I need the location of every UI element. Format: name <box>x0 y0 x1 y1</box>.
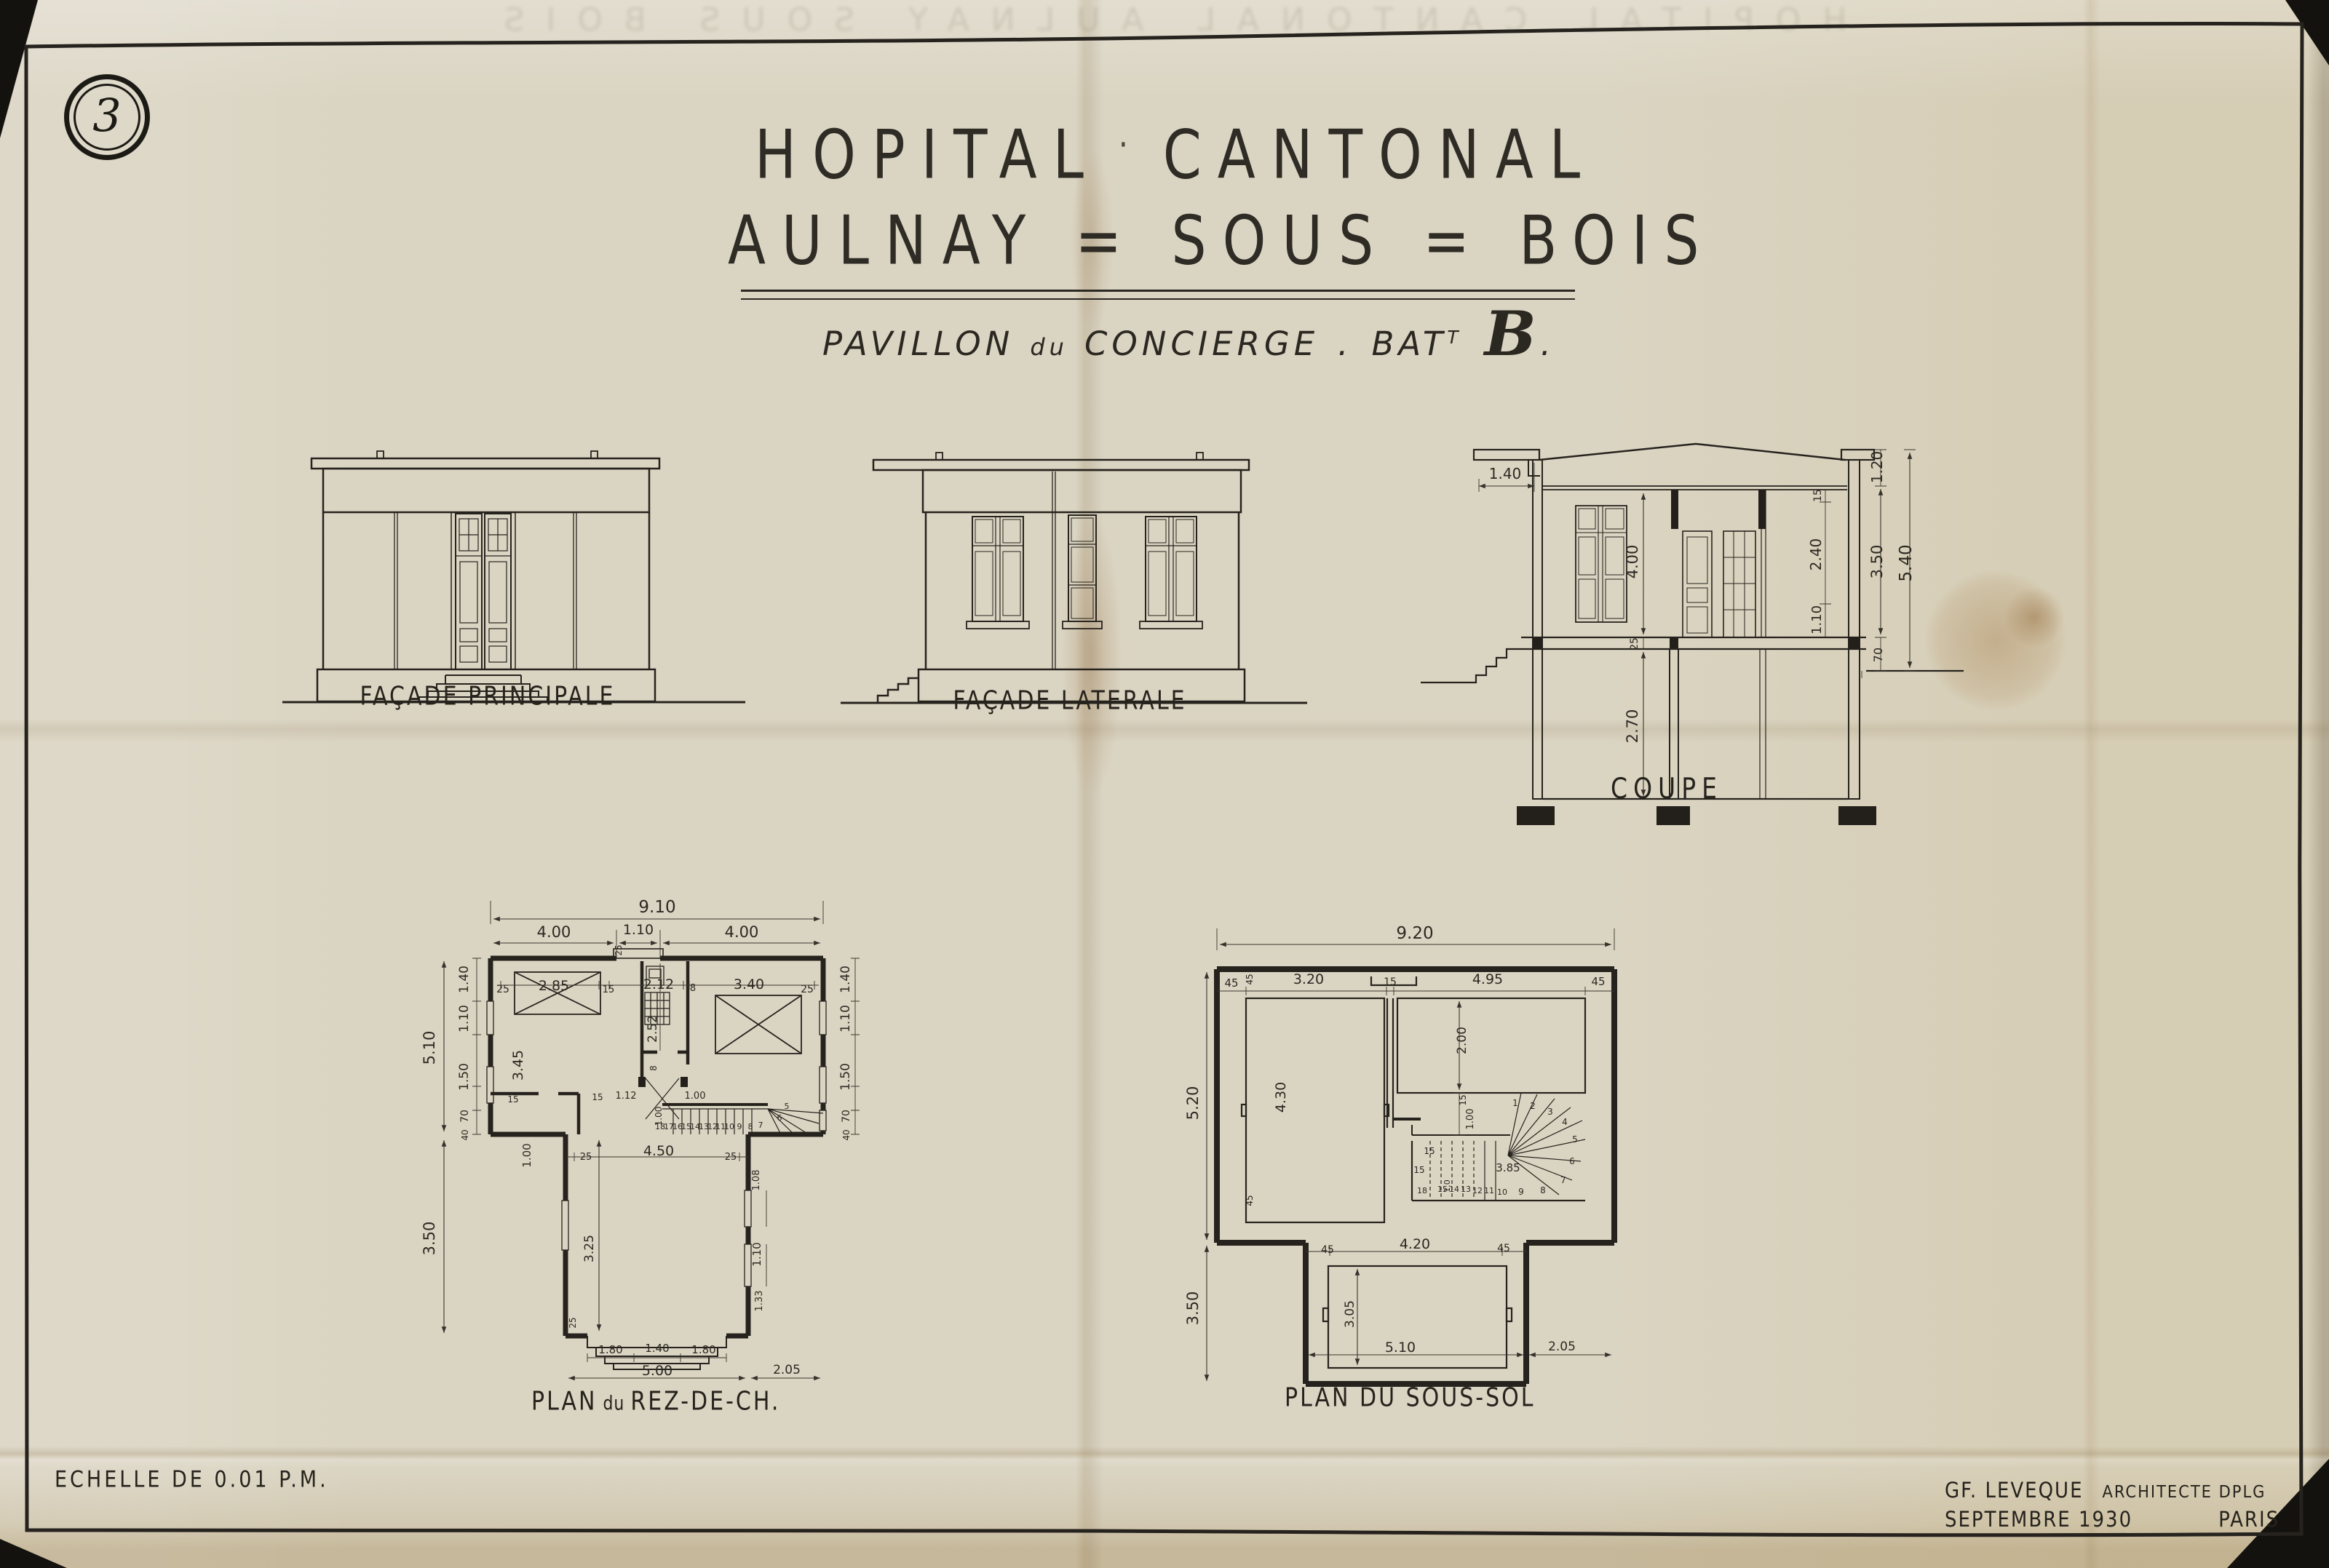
architect-line-1: GF. LEVEQUEARCHITECTE DPLG <box>1945 1479 2280 1503</box>
floor-slab <box>1521 637 1866 649</box>
dim-label: 3.25 <box>582 1235 597 1262</box>
scale-note: ECHELLE DE 0.01 P.M. <box>55 1467 329 1493</box>
dim-label: 4.95 <box>1472 971 1503 987</box>
architect-block: GF. LEVEQUEARCHITECTE DPLG SEPTEMBRE 193… <box>1945 1479 2280 1532</box>
side-steps <box>878 678 918 703</box>
dim-label: 4 <box>1562 1117 1568 1127</box>
dim-label: 8 <box>748 1122 753 1131</box>
sheet-number-badge: 3 <box>64 74 150 160</box>
subtitle-du: du <box>1030 333 1068 361</box>
dim-label: 8 <box>1540 1185 1546 1195</box>
dim-label: 3.05 <box>1343 1300 1357 1328</box>
dim-label: 3.20 <box>1293 971 1324 987</box>
dim-label: 25 <box>801 984 814 995</box>
dim-label: 25 <box>496 984 509 995</box>
dim-label: 15 <box>603 984 615 995</box>
dim-label: 3.85 <box>1496 1161 1520 1174</box>
dim-label: 40 <box>460 1129 470 1140</box>
architect-title: ARCHITECTE DPLG <box>2103 1481 2266 1501</box>
soussol-dim-lines <box>1207 928 1614 1381</box>
dim-label: 6 <box>1569 1156 1575 1166</box>
dim-label: 7 <box>1560 1175 1566 1185</box>
dim-label: 15 <box>1413 1165 1424 1175</box>
dim-label: 1.80 <box>691 1343 715 1356</box>
caption-plan-sous-sol: PLAN DU SOUS-SOL <box>1285 1382 1525 1413</box>
dim-label: 5 <box>1572 1134 1578 1145</box>
title-word-hopital: HOPITAL <box>755 115 1100 194</box>
dim-label: 15 <box>1812 489 1824 502</box>
dim-label: 3.50 <box>1184 1292 1202 1326</box>
wall-edges <box>323 512 649 669</box>
plan-sous-sol-drawing: 9.205.203.50453.20154.9545454.302.00151.… <box>1179 910 1667 1426</box>
dim-label: 2.52 <box>646 1015 660 1043</box>
dim-label: 1 <box>1512 1098 1518 1108</box>
side-windows <box>967 515 1202 629</box>
title-word-cantonal: CANTONAL <box>1163 115 1596 194</box>
sheet-number: 3 <box>92 89 121 142</box>
dim-label: 1.10 <box>623 922 654 938</box>
dim-label: 10 <box>1497 1187 1507 1197</box>
dim-label: 3 <box>1547 1107 1553 1117</box>
left-wall-section <box>1533 460 1542 799</box>
cornice-band <box>923 470 1241 512</box>
dim-label: 25 <box>568 1317 578 1328</box>
dim-label: 40 <box>841 1129 852 1140</box>
dim-label: 1.40 <box>838 966 853 993</box>
front-elevation-structure <box>282 451 745 702</box>
dim-label: 1.33 <box>754 1291 765 1312</box>
footing <box>1838 806 1876 825</box>
footing <box>1657 806 1690 825</box>
dim-label: 9.10 <box>638 898 675 917</box>
dim-label: 15 <box>1384 976 1397 988</box>
right-wall-section <box>1849 460 1860 799</box>
dim-label: 1.80 <box>598 1343 622 1356</box>
ceiling-line <box>1543 486 1847 490</box>
dim-label: 2.40 <box>1807 538 1825 571</box>
architect-name: GF. LEVEQUE <box>1945 1479 2084 1503</box>
section-structure <box>1421 444 1964 825</box>
subtitle-concierge: CONCIERGE <box>1084 325 1319 363</box>
exterior-steps <box>1421 649 1521 682</box>
caption-facade-laterale: FAÇADE LATERALE <box>924 685 1215 716</box>
dim-label: 8 <box>690 983 696 994</box>
dim-label: 5.10 <box>421 1031 438 1065</box>
dim-label: 4.00 <box>537 923 571 941</box>
dim-label: 25 <box>614 944 624 955</box>
dim-label: 6 <box>777 1113 782 1123</box>
entrance-double-door <box>451 512 515 669</box>
dim-label: 1.40 <box>1489 465 1522 482</box>
roof-slab <box>312 458 659 469</box>
dim-label: 2.05 <box>773 1363 801 1377</box>
dim-label: 70 <box>459 1110 471 1123</box>
dim-label: 4.30 <box>1273 1082 1289 1113</box>
dim-label: 2.05 <box>1548 1340 1576 1354</box>
footing <box>1517 806 1555 825</box>
dimension-labels: 1.401.20152.401.103.505.404.0025702.70 <box>1489 451 1916 744</box>
dim-label: 11 <box>1484 1186 1494 1195</box>
dim-label: 25 <box>725 1152 737 1163</box>
subtitle-end-dot: . <box>1541 325 1555 363</box>
dim-label: 13 <box>1461 1185 1471 1194</box>
dim-label: 2 <box>1530 1101 1536 1111</box>
dimension-labels: 9.104.001.104.00255.103.501.401.101.5070… <box>421 898 853 1379</box>
sheet-number-inner-ring: 3 <box>74 84 140 151</box>
dim-label: 5 <box>785 1102 790 1111</box>
scanned-architectural-sheet: { "sheet": { "number": "3", "title_word1… <box>0 0 2329 1568</box>
dim-label: 2.00 <box>1455 1027 1469 1054</box>
dim-label: 4.50 <box>643 1143 674 1159</box>
dim-label: 4.20 <box>1400 1236 1430 1252</box>
dim-label: 45 <box>1321 1244 1334 1256</box>
dim-label: 9 <box>1518 1187 1524 1197</box>
dim-label: 45 <box>1245 974 1255 984</box>
dim-label: 25 <box>580 1152 592 1163</box>
dim-label: 12 <box>1472 1186 1483 1195</box>
roof-line <box>1539 444 1845 460</box>
caption-plan-rdc: PLANduREZ-DE-CH. <box>531 1386 779 1417</box>
section-window-and-doors <box>1576 506 1755 637</box>
dim-label: 1.12 <box>616 1091 637 1102</box>
rdc-dim-lines <box>444 901 860 1378</box>
cornice-band <box>323 469 649 512</box>
dim-label: 5.40 <box>1897 544 1916 581</box>
title-line-2: AULNAY = SOUS = BOIS <box>728 201 1623 280</box>
dim-label: 15 <box>1458 1094 1468 1105</box>
soussol-walls <box>1217 969 1614 1384</box>
dim-label: 15 <box>1437 1185 1448 1194</box>
dim-label: 1.50 <box>838 1063 853 1091</box>
dim-label: 10 <box>724 1122 734 1131</box>
dim-label: 1.50 <box>457 1063 472 1091</box>
dim-label: 1.00 <box>520 1143 533 1167</box>
dim-label: 3.50 <box>421 1222 438 1256</box>
dim-label: 1.10 <box>457 1005 472 1032</box>
dim-label: 2.12 <box>643 976 674 992</box>
dim-label: 9.20 <box>1396 924 1433 943</box>
roof-slab <box>873 460 1249 470</box>
dim-label: 1.10 <box>750 1242 763 1266</box>
dim-label: 8 <box>648 1065 659 1071</box>
dim-label: 70 <box>841 1110 852 1123</box>
dim-label: 14 <box>1449 1185 1459 1194</box>
side-elevation-structure <box>841 453 1307 703</box>
title-underline <box>741 290 1575 300</box>
dim-label: 1.08 <box>751 1170 762 1191</box>
subtitle-pavillon: PAVILLON <box>822 325 1014 363</box>
left-eave-slab <box>1474 450 1539 460</box>
dim-label: 1.00 <box>685 1091 706 1102</box>
dim-label: 45 <box>1591 975 1605 988</box>
dim-label: 4.00 <box>1624 545 1641 579</box>
dim-label: 45 <box>1224 976 1238 990</box>
dim-label: 45 <box>1245 1195 1255 1206</box>
dim-label: 45 <box>1497 1243 1510 1254</box>
architect-line-2: SEPTEMBRE 1930PARIS <box>1945 1508 2280 1532</box>
dim-label: 1.10 <box>1809 605 1825 634</box>
rdc-partitions <box>491 961 768 1134</box>
subtitle-bat: BATT <box>1371 325 1462 363</box>
dim-label: 9 <box>737 1122 742 1131</box>
coupe-drawing: 1.401.20152.401.103.505.404.0025702.70 <box>1419 422 1965 829</box>
dim-label: 5.20 <box>1184 1086 1202 1121</box>
dim-label: 15 <box>592 1092 603 1102</box>
caption-coupe: COUPE <box>1590 771 1743 805</box>
dim-label: 7 <box>758 1121 763 1130</box>
dim-label: 2.85 <box>539 978 569 994</box>
dim-label: 1.40 <box>457 966 472 993</box>
dim-label: 1.20 <box>1868 451 1886 484</box>
dim-label: 3.45 <box>510 1050 526 1081</box>
dim-label: 18 <box>1417 1186 1427 1195</box>
dim-label: 1.00 <box>1465 1109 1476 1130</box>
dim-label: 5.10 <box>1385 1340 1416 1356</box>
caption-facade-principale: FAÇADE PRINCIPALE <box>342 681 633 712</box>
drawing-subtitle: PAVILLON du CONCIERGE . BATT B . <box>822 325 1550 363</box>
plan-rdc-drawing: 9.104.001.104.00255.103.501.401.101.5070… <box>404 886 884 1417</box>
dim-label: 5.00 <box>642 1363 672 1379</box>
dim-label: 15 <box>507 1094 518 1105</box>
dim-label: 1.10 <box>838 1005 853 1032</box>
title-separator-dot: · <box>1100 124 1163 165</box>
dim-label: 3.50 <box>1868 545 1886 579</box>
dim-label: 3.40 <box>734 976 764 992</box>
architect-city: PARIS <box>2218 1508 2280 1532</box>
dim-label: 25 <box>1629 637 1640 650</box>
dim-label: 15 <box>1424 1146 1435 1156</box>
dim-label: 2.70 <box>1624 709 1641 744</box>
dim-label: 1.40 <box>645 1342 669 1355</box>
wall-joint <box>1052 471 1055 669</box>
dim-label: 70 <box>1871 648 1885 662</box>
section-dim-lines <box>1479 450 1916 796</box>
title-line-1: HOPITAL·CANTONAL <box>728 115 1623 194</box>
subtitle-period: . <box>1338 325 1352 363</box>
dim-label: 4.00 <box>725 923 759 941</box>
drawing-date: SEPTEMBRE 1930 <box>1945 1508 2132 1532</box>
